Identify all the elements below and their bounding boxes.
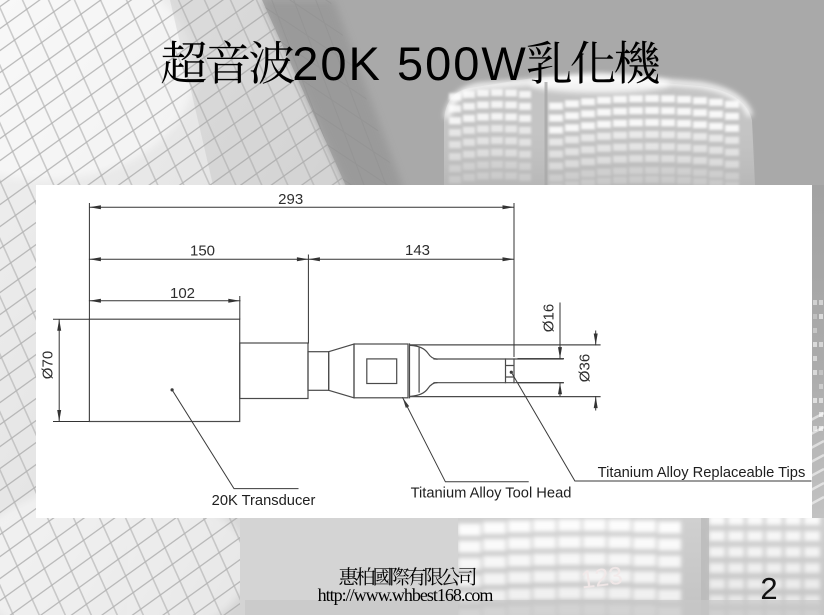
svg-text:150: 150 <box>190 242 215 259</box>
svg-text:Ø36: Ø36 <box>577 354 594 382</box>
svg-text:Titanium Alloy Replaceable Tip: Titanium Alloy Replaceable Tips <box>598 465 806 481</box>
svg-text:Ø16: Ø16 <box>541 304 558 332</box>
svg-text:Titanium Alloy Tool Head: Titanium Alloy Tool Head <box>411 486 572 502</box>
svg-text:Ø70: Ø70 <box>40 351 57 379</box>
svg-text:102: 102 <box>170 285 195 302</box>
svg-text:20K Transducer: 20K Transducer <box>212 493 316 509</box>
svg-text:293: 293 <box>278 191 303 208</box>
svg-text:143: 143 <box>405 242 430 259</box>
